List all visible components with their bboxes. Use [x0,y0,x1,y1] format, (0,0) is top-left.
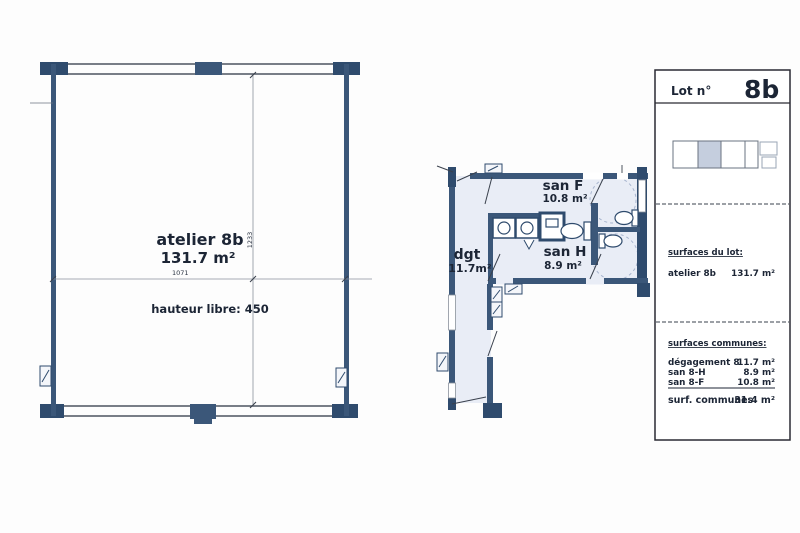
wc-partition-wall [591,203,598,265]
commune-row-label: san 8-F [668,378,704,388]
commune-row-label: san 8-H [668,368,706,378]
plan-drawing: atelier 8b 131.7 m² 1071 1233 hauteur li… [0,0,800,533]
switch-icon [40,366,51,386]
lot-row-value: 131.7 m² [731,269,775,279]
sanh-area-label: 8.9 m² [544,260,582,272]
switch-icon [485,164,502,173]
wall-pillar [483,403,502,418]
commune-row-value: 10.8 m² [737,378,775,388]
lot-info-panel: Lot n° 8b surfaces du lot: atelier 8b 13… [655,70,790,440]
commune-row-value: 8.9 m² [743,368,775,378]
washbasin-icon [493,218,515,238]
toilet-icon [615,210,638,226]
door-gap [586,278,604,285]
switch-icon [491,287,502,302]
lot-label: Lot n° [671,84,711,98]
height-dimension-label: 1233 [246,232,254,249]
switch-icon [505,284,522,294]
commune-row-value: 11.7 m² [737,358,775,368]
window [449,383,456,398]
wall-pillar [448,167,456,187]
lot-number: 8b [744,75,779,104]
sanf-area-label: 10.8 m² [542,193,588,205]
door-gap [583,173,603,180]
window [639,180,646,212]
toilet-icon [599,234,622,248]
dgt-label: dgt [454,247,481,263]
atelier-floor-plan: atelier 8b 131.7 m² 1071 1233 hauteur li… [30,62,372,424]
key-plan-annex-cell [760,142,777,155]
switch-icon [437,353,448,371]
key-plan-annex-cell [762,157,776,168]
surfaces-communes-title: surfaces communes: [668,339,766,349]
pillar [190,404,216,419]
atelier-area-label: 131.7 m² [161,249,236,267]
atelier-name-label: atelier 8b [156,230,243,249]
left-wall [51,64,56,416]
width-dimension-label: 1071 [172,269,189,277]
pillar-stub [194,418,212,424]
floor [455,176,637,403]
wall-pillar [637,283,650,297]
key-plan-highlighted-cell [698,141,721,168]
right-wall [344,64,349,416]
corridor-right-wall [487,357,493,403]
lot-row-label: atelier 8b [668,269,716,279]
corridor-left-wall [449,167,455,410]
washbasin-icon [516,218,538,238]
sanh-label: san H [544,244,587,260]
toilet-icon [561,222,591,240]
door-gap [617,173,628,180]
clear-height-note: hauteur libre: 450 [151,302,269,316]
sanf-label: san F [543,178,584,194]
switch-icon [491,302,502,317]
window [449,295,456,330]
surfaces-lot-title: surfaces du lot: [668,248,743,258]
sanitary-floor-plan: san F 10.8 m² san H 8.9 m² dgt 11.7m² [437,164,650,418]
pillar [195,62,222,75]
door-gap [496,278,513,285]
floor-plan-sheet: atelier 8b 131.7 m² 1071 1233 hauteur li… [0,0,800,533]
total-value: 31.4 m² [734,395,775,406]
sanf-sanh-partition [598,227,640,232]
dgt-area-label: 11.7m² [448,262,492,275]
commune-row-label: dégagement 8 [668,357,740,368]
switch-icon [336,368,347,387]
cistern-icon [546,219,558,227]
